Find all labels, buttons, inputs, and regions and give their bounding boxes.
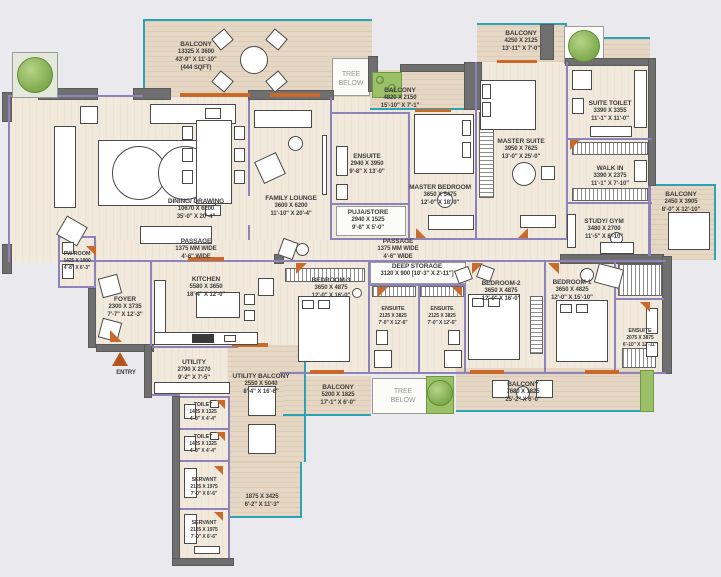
label-study-gym: STUDY/ GYM3480 X 270011'-5" X 8'-10" bbox=[584, 218, 623, 242]
label-ensuite-bedroom-2: ENSUITE2125 X 38257'-0" X 12'-6" bbox=[427, 306, 456, 326]
partition-wall bbox=[248, 100, 250, 196]
toilet-wc bbox=[448, 330, 460, 345]
sink bbox=[224, 335, 236, 342]
partition-wall bbox=[180, 428, 228, 430]
partition-wall bbox=[180, 460, 228, 462]
bathtub bbox=[634, 70, 647, 128]
sofa bbox=[54, 126, 76, 208]
pillow bbox=[560, 304, 572, 313]
label-bedroom-1: BEDROOM-13650 X 482512'-0" X 15'-10" bbox=[551, 279, 593, 303]
balcony-edge bbox=[283, 414, 371, 416]
partition-wall bbox=[614, 298, 616, 373]
pillow bbox=[482, 84, 491, 99]
vanity bbox=[590, 126, 632, 137]
utility-unit bbox=[248, 424, 276, 454]
fridge bbox=[258, 278, 274, 296]
bedroom-2-wardrobe bbox=[530, 296, 543, 354]
label-corridor-dims: 1875 X 34256'-2" X 11'-3" bbox=[245, 494, 280, 510]
staircase bbox=[618, 264, 662, 296]
wall-segment bbox=[2, 244, 12, 274]
tree-icon bbox=[568, 30, 600, 62]
dining-chair bbox=[234, 148, 245, 162]
label-passage-west: PASSAGE1375 MM WIDE4'-6" WIDE bbox=[175, 238, 216, 262]
partition-wall bbox=[418, 284, 420, 373]
balcony-table bbox=[240, 46, 268, 74]
label-ensuite-bedroom-1: ENSUITE2075 X 38756'-10" X 12'-11" bbox=[623, 328, 657, 348]
floor-plan: BALCONY13325 X 360043'-9" X 11'-10"(444 … bbox=[0, 0, 721, 577]
partition-wall bbox=[94, 236, 96, 288]
label-passage-east: PASSAGE1375 MM WIDE4'-6" WIDE bbox=[377, 238, 418, 262]
label-deep-storage: DEEP STORAGE3120 X 900 [10'-3" X 2'-11"] bbox=[380, 263, 453, 279]
partition-wall bbox=[330, 238, 566, 240]
side-table bbox=[352, 288, 362, 298]
balcony-edge bbox=[650, 184, 716, 186]
door-swing bbox=[518, 228, 528, 238]
label-bedroom-3: BEDROOM-33650 X 487512'-0" X 16'-0" bbox=[312, 277, 351, 301]
label-balcony-top-left: BALCONY13325 X 360043'-9" X 11'-10"(444 … bbox=[175, 41, 216, 73]
tree-icon bbox=[427, 380, 453, 406]
door-swing bbox=[216, 432, 225, 441]
label-toilet-1: TOILET1425 X 13254'-8" X 4'-4" bbox=[189, 402, 216, 422]
sofa bbox=[428, 215, 474, 230]
door-lintel bbox=[497, 60, 537, 63]
label-dining-drawing: DINING/ DRAWING10670 X 620035'-0" X 20'-… bbox=[168, 198, 224, 222]
stove bbox=[192, 334, 214, 343]
partition-wall bbox=[150, 262, 152, 346]
partition-wall bbox=[544, 262, 546, 373]
partition-wall bbox=[332, 112, 408, 114]
door-lintel bbox=[415, 109, 451, 112]
shower bbox=[444, 350, 462, 368]
label-kitchen: KITCHEN5580 X 365018'-4" X 12'-0" bbox=[187, 276, 225, 300]
wall-segment bbox=[662, 256, 672, 374]
dining-chair bbox=[182, 126, 193, 140]
label-utility-balcony: UTILITY BALCONY2550 X 50408'-4" X 16'-6" bbox=[233, 373, 290, 397]
label-toilet-2: TOILET1425 X 13254'-8" X 4'-4" bbox=[189, 434, 216, 454]
planter-strip bbox=[640, 370, 654, 412]
dining-chair bbox=[182, 148, 193, 162]
label-ensuite-master: ENSUITE2940 X 39509'-8" X 13'-0" bbox=[349, 153, 384, 177]
partition-wall bbox=[614, 298, 664, 300]
balcony-edge bbox=[600, 37, 650, 39]
door-lintel bbox=[180, 93, 250, 97]
partition-wall bbox=[58, 236, 60, 288]
label-family-lounge: FAMILY LOUNGE3600 X 620011'-10" X 20'-4" bbox=[265, 195, 316, 219]
decor-table bbox=[80, 106, 98, 124]
door-swing bbox=[548, 263, 559, 274]
toilet-wc bbox=[376, 330, 388, 345]
wall-segment bbox=[540, 24, 554, 60]
pillow bbox=[482, 102, 491, 117]
label-servant-1: SERVANT2125 X 19757'-0" X 6'-6" bbox=[190, 477, 217, 497]
door-swing bbox=[296, 263, 307, 274]
pillow bbox=[576, 304, 588, 313]
label-balcony-bottom-right: BALCONY7680 X 182525'-2" X 6'-0" bbox=[505, 381, 540, 405]
partition-wall bbox=[180, 396, 228, 398]
door-swing bbox=[472, 263, 483, 274]
balcony-edge bbox=[304, 345, 306, 462]
wall-segment bbox=[133, 88, 171, 100]
wall-segment bbox=[172, 558, 234, 566]
walk-in-wardrobe bbox=[572, 142, 648, 155]
wall-segment bbox=[648, 58, 656, 186]
tree-icon bbox=[17, 57, 53, 93]
stool bbox=[244, 310, 255, 321]
door-swing bbox=[214, 466, 223, 475]
window bbox=[194, 546, 220, 554]
wall-segment bbox=[172, 396, 180, 566]
label-balcony-master-bedroom: BALCONY4820 X 215015'-10" X 7'-1" bbox=[381, 87, 419, 111]
partition-wall bbox=[152, 346, 238, 348]
chair bbox=[541, 166, 555, 180]
partition-wall bbox=[180, 508, 228, 510]
toilet-wc bbox=[572, 98, 584, 114]
pillow bbox=[462, 142, 471, 158]
label-ensuite-bedroom-3: ENSUITE2125 X 38257'-0" X 12'-6" bbox=[378, 306, 407, 326]
door-swing bbox=[216, 400, 225, 409]
door-swing bbox=[378, 287, 388, 297]
partition-wall bbox=[8, 97, 10, 262]
balcony-step bbox=[668, 212, 710, 250]
shower bbox=[374, 350, 392, 368]
partition-wall bbox=[566, 202, 652, 204]
balcony-edge bbox=[143, 19, 145, 97]
door-swing bbox=[640, 302, 650, 312]
stool bbox=[244, 294, 255, 305]
door-swing bbox=[416, 228, 426, 238]
label-balcony-master-suite: BALCONY4250 X 212513'-11" X 7'-0" bbox=[502, 30, 540, 54]
dining-chair bbox=[234, 126, 245, 140]
shower bbox=[572, 70, 592, 90]
toilet-wc bbox=[336, 184, 348, 200]
label-balcony-bottom-left: BALCONY5200 X 182517'-1" X 6'-0" bbox=[320, 384, 355, 408]
label-utility: UTILITY2790 X 22709'-2" X 7'-5" bbox=[178, 359, 211, 383]
dining-chair bbox=[205, 108, 221, 119]
utility-counter bbox=[154, 382, 230, 394]
tv-unit bbox=[322, 135, 327, 195]
label-foyer: FOYER2300 X 37357'-7" X 12'-3" bbox=[107, 296, 142, 320]
label-master-suite: MASTER SUITE3950 X 762513'-0" X 25'-0" bbox=[497, 138, 544, 162]
dining-chair bbox=[234, 170, 245, 184]
pillow bbox=[318, 300, 330, 309]
desk bbox=[600, 242, 634, 254]
dresser bbox=[520, 215, 556, 228]
label-servant-2: SERVANT2125 X 19757'-0" X 6'-6" bbox=[190, 520, 217, 540]
round-table bbox=[512, 162, 536, 186]
desk bbox=[567, 214, 576, 248]
partition-wall bbox=[152, 394, 180, 396]
balcony-edge bbox=[143, 19, 372, 21]
balcony-edge bbox=[228, 516, 302, 518]
label-puja-store: PUJA/STORE2940 X 15259'-8" X 5'-0" bbox=[348, 209, 388, 233]
label-master-bedroom: MASTER BEDROOM3650 X 547512'-0" X 18'-0" bbox=[409, 184, 471, 208]
label-bedroom-2: BEDROOM-23650 X 487512'-0" X 16'-0" bbox=[482, 280, 521, 304]
door-swing bbox=[110, 330, 122, 342]
dining-table bbox=[196, 120, 232, 204]
door-lintel bbox=[470, 370, 504, 374]
side-table bbox=[288, 136, 303, 151]
door-lintel bbox=[270, 93, 320, 97]
door-lintel bbox=[585, 370, 619, 374]
balcony-edge bbox=[300, 462, 302, 518]
walk-in-wardrobe bbox=[572, 188, 648, 201]
partition-wall bbox=[248, 225, 250, 240]
label-pw-room: PW ROOM1425 X 19004'-8" X 6'-3" bbox=[63, 251, 90, 271]
label-entry: ENTRY bbox=[116, 370, 136, 378]
partition-wall bbox=[330, 97, 332, 240]
partition-wall bbox=[475, 62, 477, 240]
partition-wall bbox=[408, 112, 410, 238]
label-tree-below-top: TREEBELOW bbox=[339, 70, 364, 88]
label-walk-in: WALK IN3390 X 237511'-1" X 7'-10" bbox=[591, 165, 629, 189]
sofa bbox=[254, 110, 312, 128]
balcony-edge bbox=[714, 184, 716, 260]
wall-segment bbox=[400, 64, 470, 72]
dining-chair bbox=[182, 170, 193, 184]
label-suite-toilet: SUITE TOILET3390 X 335511'-1" X 11'-0" bbox=[589, 100, 632, 124]
door-swing bbox=[452, 287, 462, 297]
partition-wall bbox=[58, 286, 96, 288]
pillow bbox=[462, 120, 471, 136]
entry-arrow-icon bbox=[112, 352, 128, 366]
partition-wall bbox=[648, 186, 651, 256]
wall-segment bbox=[144, 344, 152, 398]
label-balcony-right: BALCONY2450 X 39058'-0" X 12'-10" bbox=[662, 191, 700, 215]
vanity bbox=[336, 146, 348, 176]
door-lintel bbox=[310, 370, 344, 374]
balcony-edge bbox=[456, 410, 640, 412]
balcony-ledge-suite-toilet bbox=[600, 38, 650, 60]
bench bbox=[634, 160, 647, 182]
shrub-icon bbox=[376, 76, 384, 84]
partition-wall bbox=[228, 396, 230, 558]
wall-segment bbox=[88, 288, 96, 348]
door-swing bbox=[570, 140, 580, 150]
label-tree-below-bottom: TREEBELOW bbox=[391, 387, 416, 405]
pillow bbox=[302, 300, 314, 309]
partition-wall bbox=[332, 203, 408, 205]
